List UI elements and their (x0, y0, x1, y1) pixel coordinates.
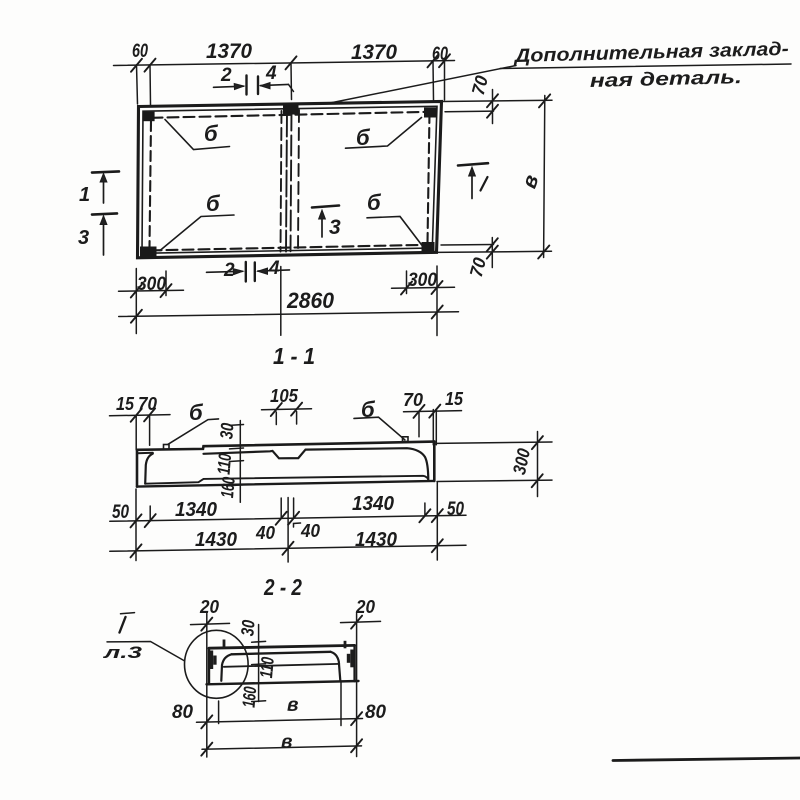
svg-text:1370: 1370 (351, 41, 397, 64)
svg-text:80: 80 (365, 702, 386, 723)
svg-text:110: 110 (214, 453, 236, 476)
svg-text:1: 1 (79, 184, 90, 206)
svg-text:300: 300 (137, 274, 166, 295)
svg-text:70: 70 (468, 74, 492, 98)
svg-text:л.3: л.3 (102, 643, 142, 662)
svg-text:1430: 1430 (355, 529, 397, 551)
svg-text:160: 160 (239, 686, 261, 709)
svg-text:1340: 1340 (175, 499, 217, 521)
svg-text:60: 60 (132, 41, 148, 62)
svg-text:1 - 1: 1 - 1 (273, 343, 315, 369)
svg-text:б: б (206, 191, 221, 216)
svg-text:30: 30 (216, 422, 237, 440)
svg-text:в: в (287, 695, 298, 716)
svg-text:20: 20 (199, 597, 219, 617)
svg-text:50: 50 (112, 502, 129, 523)
svg-text:50: 50 (447, 499, 464, 520)
svg-text:105: 105 (270, 386, 299, 406)
svg-text:Дополнительная заклад-: Дополнительная заклад- (512, 39, 789, 67)
svg-text:160: 160 (217, 476, 239, 499)
svg-text:20: 20 (355, 597, 375, 617)
svg-text:б: б (204, 121, 219, 146)
svg-text:80: 80 (172, 702, 193, 723)
svg-text:2860: 2860 (286, 288, 335, 313)
svg-text:70: 70 (403, 390, 423, 410)
svg-text:2 - 2: 2 - 2 (263, 574, 302, 600)
svg-text:110: 110 (256, 656, 278, 679)
svg-text:б: б (189, 400, 204, 425)
svg-text:1370: 1370 (206, 40, 252, 63)
svg-text:б: б (367, 190, 382, 215)
svg-text:ная деталь.: ная деталь. (590, 67, 742, 92)
svg-text:в: в (518, 172, 544, 191)
svg-text:в: в (281, 732, 292, 753)
svg-text:3: 3 (329, 216, 341, 239)
svg-text:40: 40 (255, 523, 275, 543)
svg-text:15: 15 (116, 394, 135, 414)
svg-text:4: 4 (268, 258, 280, 279)
svg-text:40: 40 (300, 521, 320, 541)
svg-text:60: 60 (432, 44, 448, 65)
svg-text:70: 70 (138, 394, 157, 414)
svg-text:30: 30 (237, 619, 258, 637)
svg-text:300: 300 (509, 447, 534, 477)
svg-text:б: б (361, 397, 376, 422)
svg-text:2: 2 (220, 65, 232, 86)
svg-text:2: 2 (223, 260, 235, 281)
svg-text:3: 3 (78, 227, 89, 249)
svg-text:1430: 1430 (195, 529, 237, 551)
svg-text:15: 15 (445, 389, 464, 409)
svg-text:4: 4 (265, 63, 277, 84)
svg-text:1340: 1340 (352, 493, 394, 515)
svg-text:б: б (356, 125, 371, 150)
svg-text:300: 300 (408, 270, 437, 291)
